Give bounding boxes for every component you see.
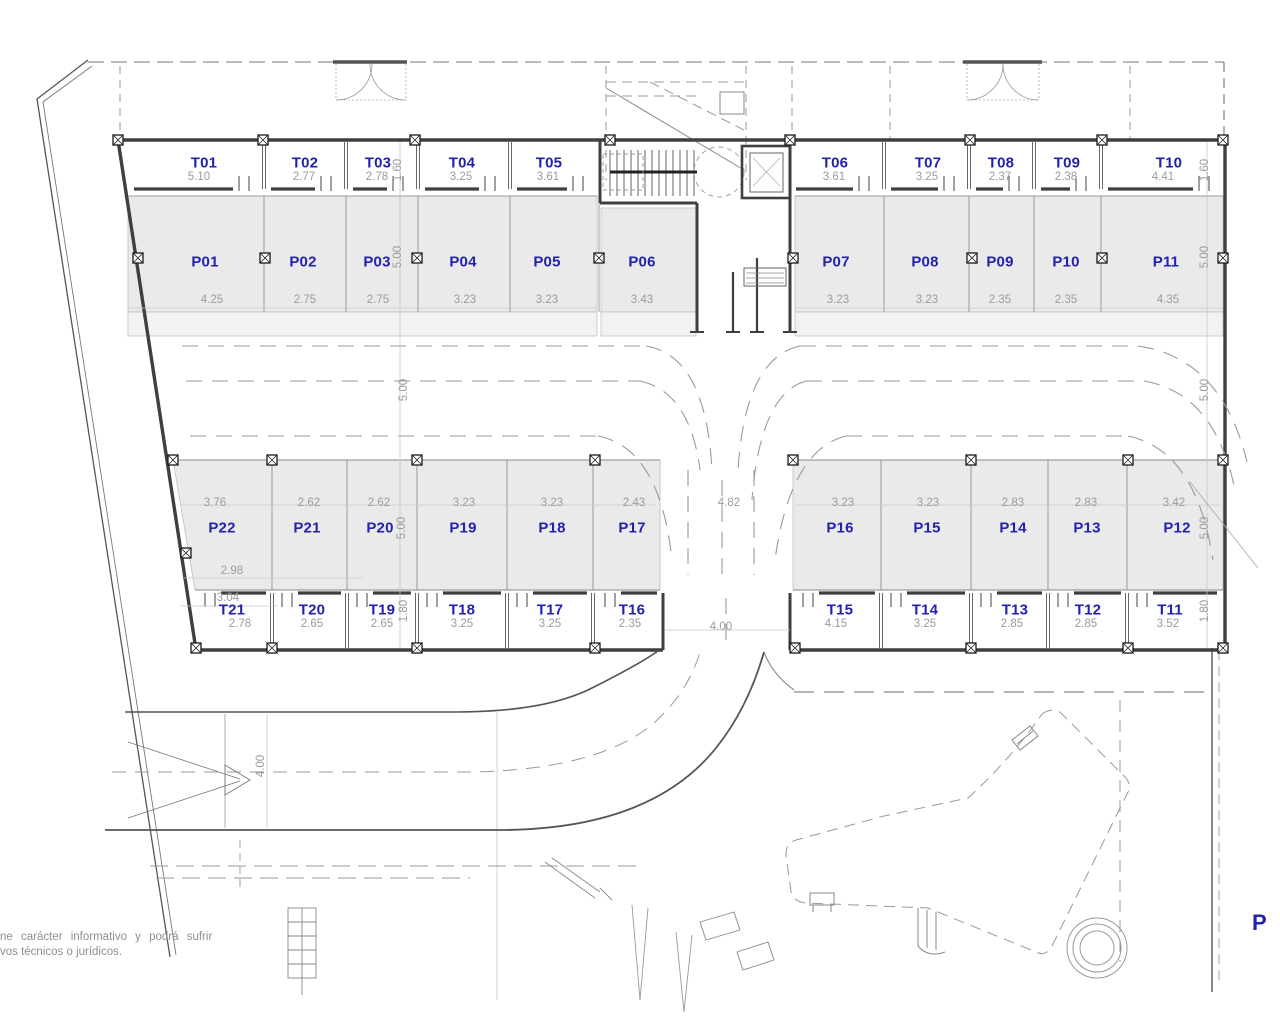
vdim-aisle-right: 5.00 <box>1199 379 1211 401</box>
parking-dim-p07: 3.23 <box>827 294 849 306</box>
parking-label-p11: P11 <box>1153 254 1179 271</box>
parking-label-p04: P04 <box>449 254 476 271</box>
storage-dim-t09: 2.38 <box>1055 171 1077 183</box>
parking-label-p20: P20 <box>366 520 393 537</box>
vdim-p-top-right: 5.00 <box>1199 246 1211 268</box>
parking-dim-p22: 3.76 <box>204 497 226 509</box>
plan-title-fragment: P <box>1252 910 1267 936</box>
storage-label-t03: T03 <box>365 155 391 172</box>
parking-dim-p11: 4.35 <box>1157 294 1179 306</box>
disclaimer-line2: vos técnicos o jurídicos. <box>0 945 238 960</box>
upper-level-outline <box>120 66 1130 180</box>
storage-label-t10: T10 <box>1156 155 1182 172</box>
parking-dim-p15: 3.23 <box>917 497 939 509</box>
storage-label-t14: T14 <box>912 602 938 619</box>
parking-label-p16: P16 <box>826 520 853 537</box>
vdim-t-bottom-right: 1.80 <box>1199 600 1211 622</box>
storage-dim-t07: 3.25 <box>916 171 938 183</box>
storage-dim-t12: 2.85 <box>1075 618 1097 630</box>
parking-dim-p20: 2.62 <box>368 497 390 509</box>
storage-dim-t13: 2.85 <box>1001 618 1023 630</box>
storage-dim-t16: 2.35 <box>619 618 641 630</box>
disclaimer-line1: ne carácter informativo y podrá sufrir <box>0 930 238 945</box>
storage-label-t17: T17 <box>537 602 563 619</box>
storage-dim-t14: 3.25 <box>914 618 936 630</box>
vdim-p-bottom-left: 5.00 <box>396 517 408 539</box>
storage-dim-t11: 3.52 <box>1157 618 1179 630</box>
parking-label-p17: P17 <box>618 520 645 537</box>
parking-dim-p03: 2.75 <box>367 294 389 306</box>
storage-dim-t03: 2.78 <box>366 171 388 183</box>
parking-label-p14: P14 <box>999 520 1026 537</box>
parking-dim-p13: 2.83 <box>1075 497 1097 509</box>
storage-dim-t05: 3.61 <box>537 171 559 183</box>
parking-label-p19: P19 <box>449 520 476 537</box>
storage-dim-t08: 2.37 <box>989 171 1011 183</box>
double-door-arcs <box>333 62 1042 100</box>
storage-dim-t21: 2.78 <box>229 618 251 630</box>
parking-label-p06: P06 <box>628 254 655 271</box>
parking-dim-p01: 4.25 <box>201 294 223 306</box>
parking-dim-p05: 3.23 <box>536 294 558 306</box>
storage-dim-t19: 2.65 <box>371 618 393 630</box>
floor-plan-page: T01 5.10 T02 2.77 T03 2.78 T04 3.25 T05 … <box>0 0 1280 1024</box>
vdim-p-top-left: 5.00 <box>392 246 404 268</box>
dim-lane-bottom: 4.00 <box>710 621 732 633</box>
parking-label-p07: P07 <box>822 254 849 271</box>
parking-dim-p10: 2.35 <box>1055 294 1077 306</box>
parking-dim-p02: 2.75 <box>294 294 316 306</box>
parking-label-p02: P02 <box>289 254 316 271</box>
dim-lane-top: 4.82 <box>718 497 740 509</box>
parking-dim-p06: 3.43 <box>631 294 653 306</box>
parking-label-p10: P10 <box>1052 254 1079 271</box>
parking-label-p01: P01 <box>191 254 218 271</box>
parking-dim-p21: 2.62 <box>298 497 320 509</box>
vdim-t-bottom-left: 1.80 <box>398 600 410 622</box>
storage-dim-t15: 4.15 <box>825 618 847 630</box>
storage-label-t16: T16 <box>619 602 645 619</box>
elevator-shaft <box>742 146 790 286</box>
dim-p22-front: 2.98 <box>221 565 243 577</box>
storage-label-t20: T20 <box>299 602 325 619</box>
parking-label-p12: P12 <box>1163 520 1190 537</box>
storage-dim-t17: 3.25 <box>539 618 561 630</box>
vdim-t-top-left: 1.60 <box>392 159 404 181</box>
bench-icons <box>810 726 1038 912</box>
storage-label-t21: T21 <box>219 602 245 619</box>
parking-dim-p12: 3.42 <box>1163 497 1185 509</box>
pool-outline <box>786 700 1129 962</box>
storage-label-t12: T12 <box>1075 602 1101 619</box>
storage-label-t15: T15 <box>827 602 853 619</box>
parking-label-p15: P15 <box>913 520 940 537</box>
storage-label-t13: T13 <box>1002 602 1028 619</box>
parking-dim-p08: 3.23 <box>916 294 938 306</box>
vdim-ramp-width: 4.00 <box>255 755 267 777</box>
parking-label-p03: P03 <box>363 254 390 271</box>
parking-label-p21: P21 <box>293 520 320 537</box>
storage-dim-t04: 3.25 <box>450 171 472 183</box>
storage-dim-t02: 2.77 <box>293 171 315 183</box>
parking-dim-p17: 2.43 <box>623 497 645 509</box>
storage-label-t07: T07 <box>915 155 941 172</box>
vdim-t-top-right: 1.60 <box>1199 159 1211 181</box>
storage-dim-t10: 4.41 <box>1152 171 1174 183</box>
parking-dim-p14: 2.83 <box>1002 497 1024 509</box>
storage-label-t02: T02 <box>292 155 318 172</box>
disclaimer-text: ne carácter informativo y podrá sufrir v… <box>0 930 238 960</box>
storage-label-t01: T01 <box>191 155 217 172</box>
spa-circles <box>1067 918 1127 978</box>
vdim-p-bottom-right: 5.00 <box>1199 517 1211 539</box>
storage-dim-t01: 5.10 <box>188 171 210 183</box>
parking-label-p09: P09 <box>986 254 1013 271</box>
parking-dim-p18: 3.23 <box>541 497 563 509</box>
parking-label-p18: P18 <box>538 520 565 537</box>
parking-label-p13: P13 <box>1073 520 1100 537</box>
parking-dim-p19: 3.23 <box>453 497 475 509</box>
storage-label-t08: T08 <box>988 155 1014 172</box>
parking-label-p05: P05 <box>533 254 560 271</box>
storage-dim-t18: 3.25 <box>451 618 473 630</box>
stair-core <box>603 147 744 197</box>
parking-dim-p09: 2.35 <box>989 294 1011 306</box>
ramp-road <box>105 651 1210 830</box>
parking-dim-p04: 3.23 <box>454 294 476 306</box>
storage-label-t05: T05 <box>536 155 562 172</box>
storage-label-t09: T09 <box>1054 155 1080 172</box>
storage-label-t18: T18 <box>449 602 475 619</box>
storage-dim-t20: 2.65 <box>301 618 323 630</box>
storage-label-t19: T19 <box>369 602 395 619</box>
storage-label-t04: T04 <box>449 155 475 172</box>
parking-label-p08: P08 <box>911 254 938 271</box>
parking-label-p22: P22 <box>208 520 235 537</box>
storage-label-t06: T06 <box>822 155 848 172</box>
ground-features <box>150 840 774 1012</box>
vdim-aisle-left: 5.00 <box>398 379 410 401</box>
parking-dim-p16: 3.23 <box>832 497 854 509</box>
storage-label-t11: T11 <box>1157 602 1183 619</box>
storage-dim-t06: 3.61 <box>823 171 845 183</box>
